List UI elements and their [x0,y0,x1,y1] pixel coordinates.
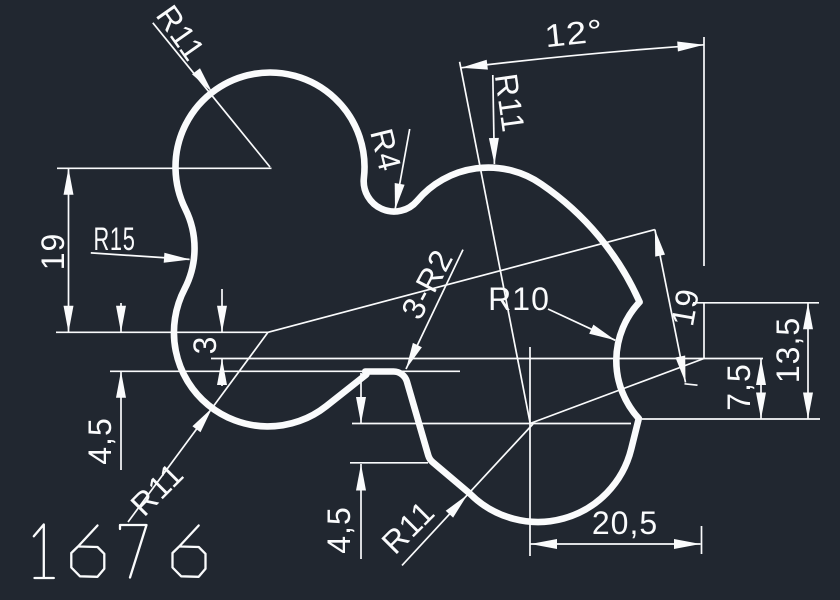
svg-text:19: 19 [664,285,706,328]
svg-text:4,5: 4,5 [321,506,357,553]
svg-text:3: 3 [187,336,223,355]
svg-text:19: 19 [35,233,71,271]
svg-text:20,5: 20,5 [592,505,658,541]
svg-text:13,5: 13,5 [770,317,806,383]
svg-text:12°: 12° [543,12,605,54]
svg-text:R15: R15 [94,221,136,257]
svg-text:4,5: 4,5 [82,417,118,464]
svg-text:R10: R10 [488,281,550,317]
svg-text:7,5: 7,5 [721,363,757,410]
